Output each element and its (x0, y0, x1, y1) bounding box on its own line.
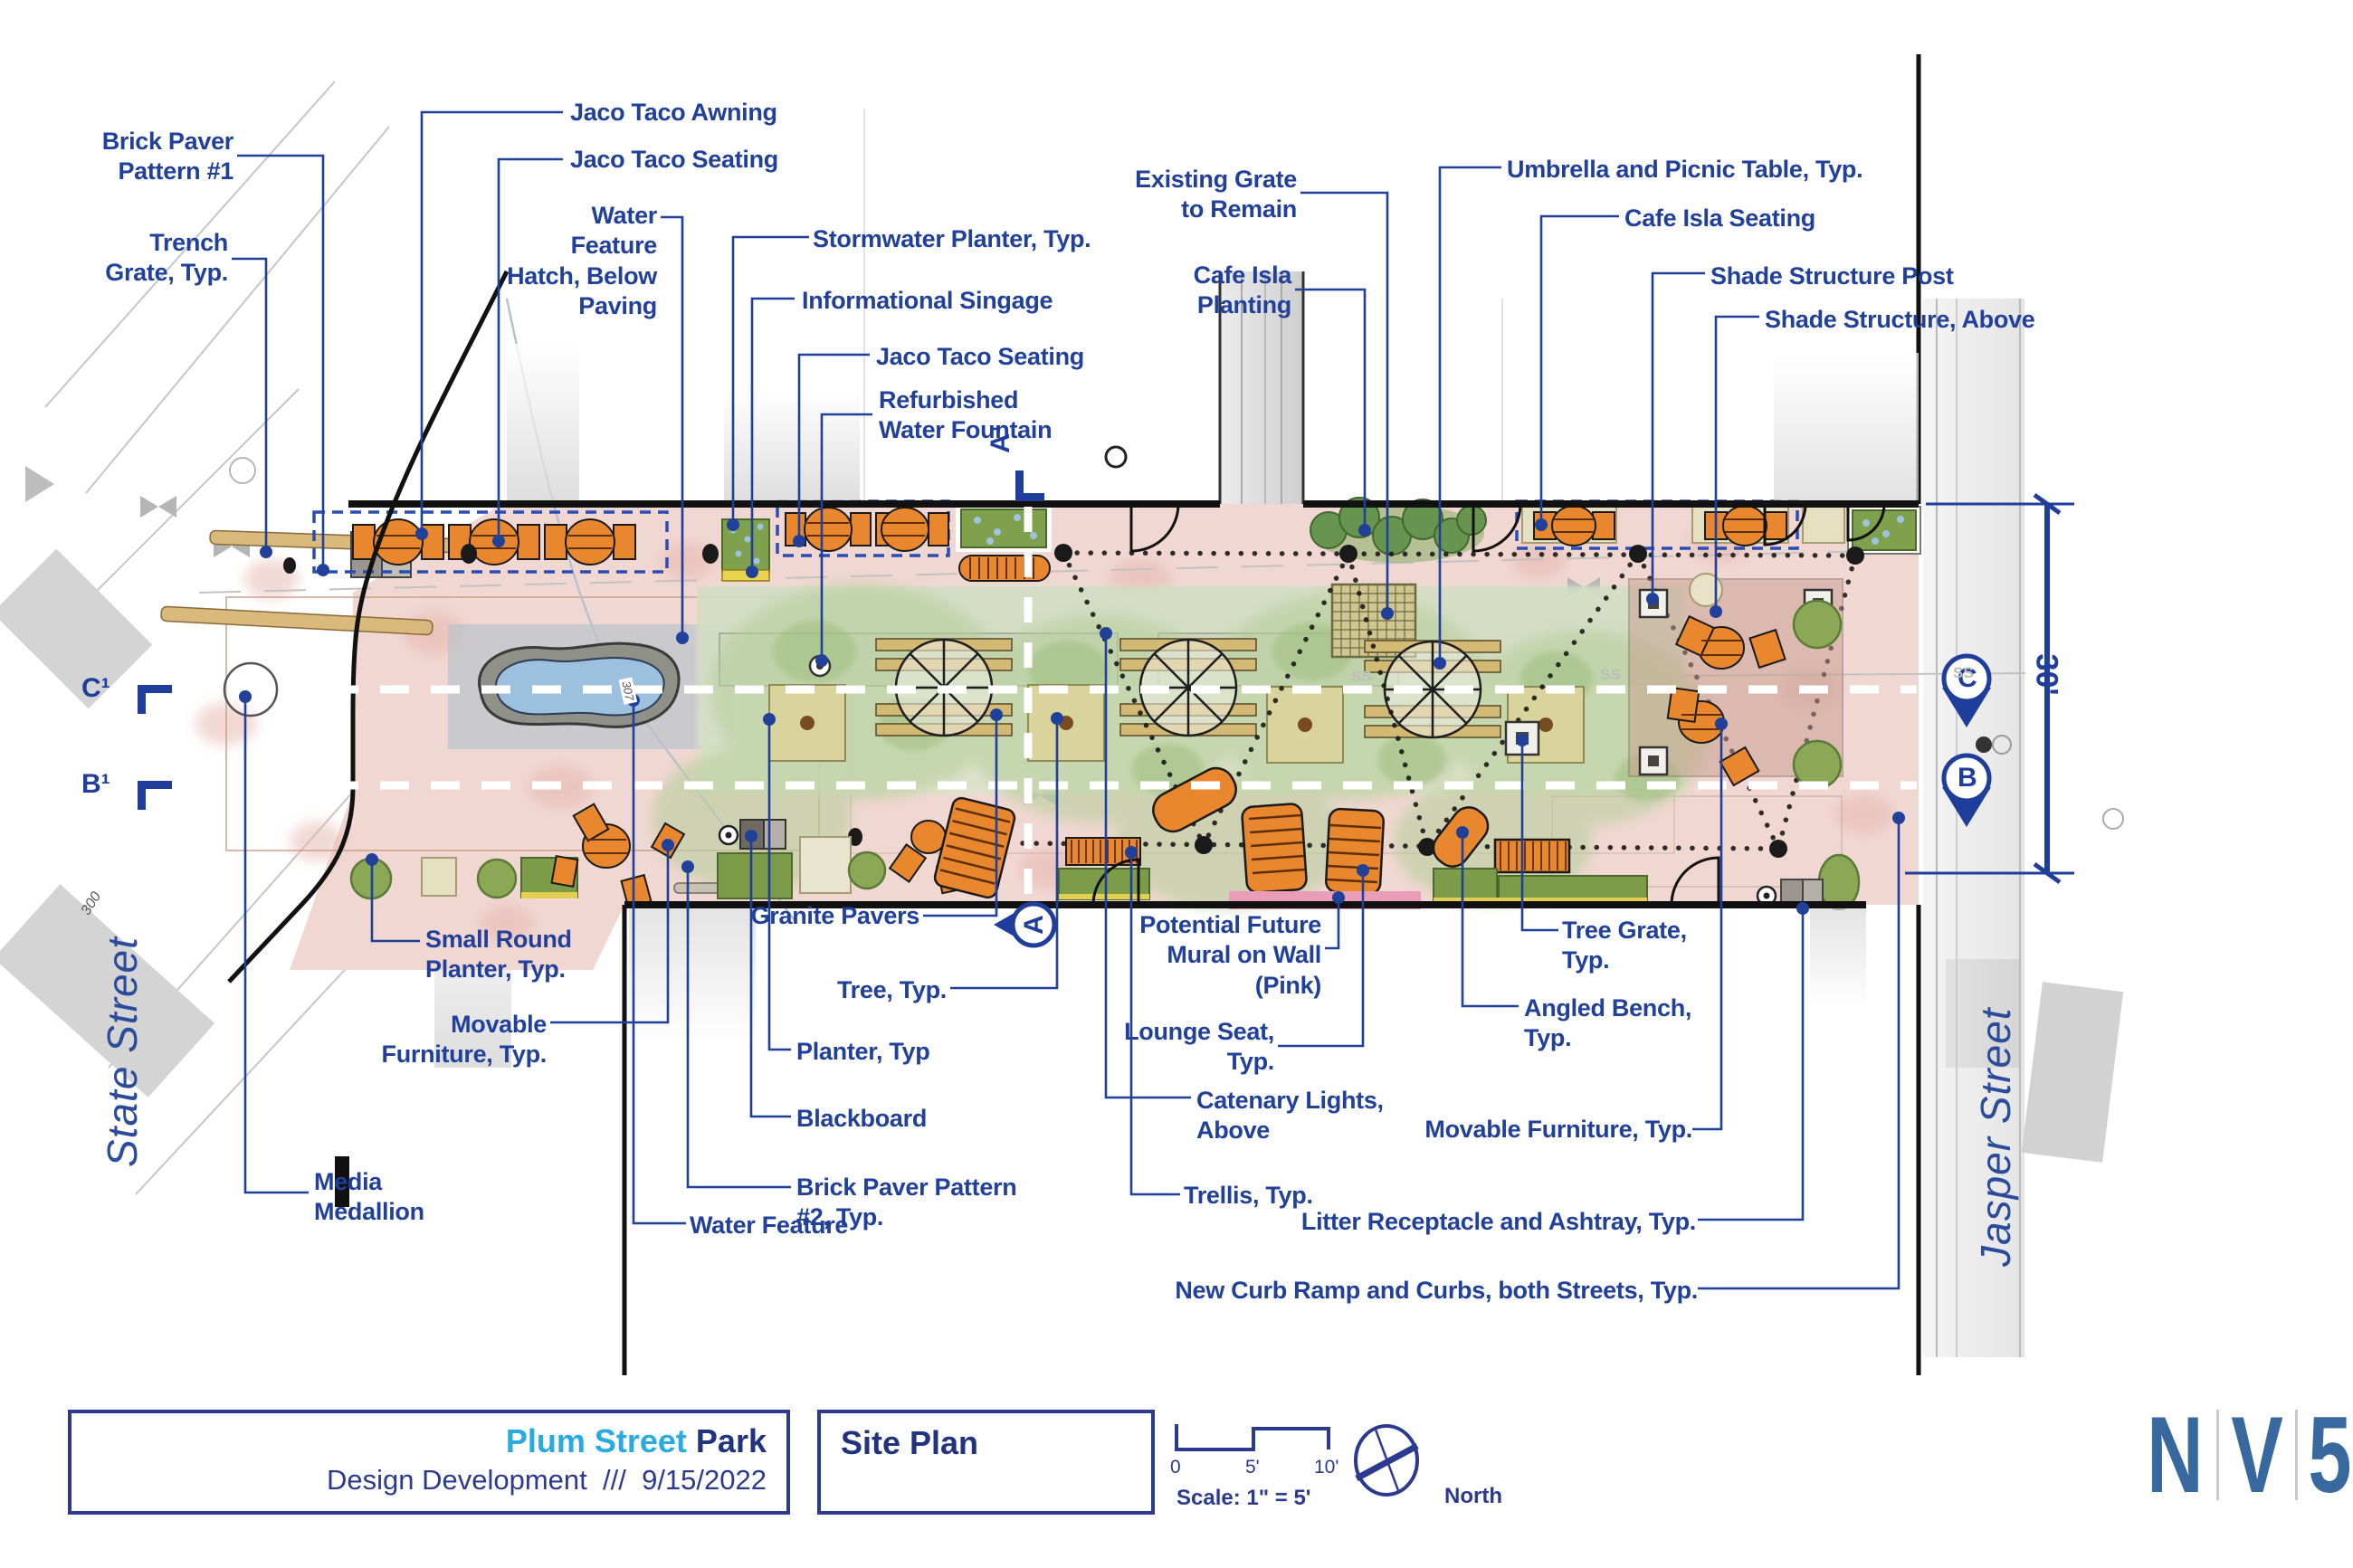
callout-planter-typ: Planter, Typ (796, 1037, 929, 1067)
callout-angled-bench: Angled Bench, Typ. (1524, 993, 1691, 1054)
callout-mural: Potential Future Mural on Wall (Pink) (1139, 910, 1321, 1001)
callout-movable-2: Movable Furniture, Typ. (1424, 1115, 1692, 1145)
section-marker-b1: B¹ (81, 769, 110, 800)
bench-top (959, 556, 1050, 581)
logo-separator (2295, 1410, 2298, 1500)
logo-letter-v: V (2231, 1401, 2283, 1509)
section-marker-c1: C¹ (81, 673, 110, 704)
callout-refurb-fountain: Refurbished Water Fountain (879, 385, 1052, 446)
callout-existing-grate: Existing Grate to Remain (1135, 165, 1297, 225)
utility-label-ss-1: SS (1351, 668, 1372, 686)
callout-brick-paver-1: Brick Paver Pattern #1 (102, 127, 233, 187)
north-arrow (1356, 1426, 1417, 1495)
callout-shade-above: Shade Structure, Above (1765, 305, 2034, 335)
sheet-name-block: Site Plan (817, 1410, 1155, 1515)
callout-jaco-awning: Jaco Taco Awning (570, 98, 777, 128)
callout-blackboard: Blackboard (796, 1104, 927, 1134)
scale-tick-10: 10' (1314, 1457, 1338, 1478)
scale-tick-5: 5' (1245, 1457, 1260, 1478)
callout-lounge-seat: Lounge Seat, Typ. (1124, 1017, 1274, 1078)
callout-jaco-seating-1: Jaco Taco Seating (570, 145, 778, 175)
project-title: Plum Street Park (506, 1422, 767, 1460)
street-label-jasper: Jasper Street (1971, 959, 2020, 1267)
callout-tree-typ: Tree, Typ. (837, 975, 947, 1005)
callout-media-medallion: Media Medallion (314, 1167, 424, 1228)
callout-cafe-planting: Cafe Isla Planting (1194, 261, 1291, 321)
dimension-label-30ft: 30' (2028, 654, 2063, 696)
callout-small-planter: Small Round Planter, Typ. (425, 925, 572, 985)
plan-drawing (0, 0, 2353, 1568)
callout-info-singage: Informational Singage (802, 286, 1053, 316)
logo-separator (2216, 1410, 2219, 1500)
project-subtitle: Design Development /// 9/15/2022 (327, 1464, 767, 1497)
scale-text: Scale: 1" = 5' (1176, 1486, 1311, 1511)
section-marker-b: B (1958, 763, 1977, 794)
nv5-logo: N V 5 (2141, 1401, 2353, 1509)
callout-jaco-seating-2: Jaco Taco Seating (876, 342, 1084, 372)
callout-litter: Litter Receptacle and Ashtray, Typ. (1301, 1207, 1696, 1237)
callout-umbrella-table: Umbrella and Picnic Table, Typ. (1507, 155, 1862, 185)
north-label: North (1444, 1484, 1502, 1509)
callout-granite-pavers: Granite Pavers (751, 901, 919, 931)
jasper-street-linework (1919, 54, 2123, 1375)
callout-trellis: Trellis, Typ. (1184, 1181, 1313, 1211)
utility-label-ss-3: SS (1953, 664, 1974, 682)
callout-stormwater: Stormwater Planter, Typ. (813, 224, 1091, 254)
utility-label-ss-2: SS (1600, 666, 1621, 684)
callout-movable-1: Movable Furniture, Typ. (382, 1010, 548, 1070)
logo-letter-n: N (2147, 1401, 2203, 1509)
callout-tree-grate: Tree Grate, Typ. (1562, 916, 1687, 976)
callout-trench-grate: Trench Grate, Typ. (105, 228, 228, 289)
scale-tick-0: 0 (1170, 1457, 1181, 1478)
callout-water-hatch: Water Feature Hatch, Below Paving (507, 201, 657, 322)
callout-shade-post: Shade Structure Post (1710, 261, 1954, 291)
title-block: Plum Street Park Design Development /// … (68, 1410, 790, 1515)
trellis-left (1059, 838, 1149, 899)
street-label-state: State Street (98, 860, 147, 1167)
callout-catenary: Catenary Lights, Above (1196, 1086, 1384, 1146)
callout-water-feature: Water Feature (690, 1211, 848, 1240)
scale-bar (1176, 1424, 1329, 1449)
logo-letter-5: 5 (2308, 1401, 2351, 1509)
callout-cafe-seating: Cafe Isla Seating (1624, 204, 1815, 233)
section-marker-a: A (1019, 915, 1050, 935)
callout-curb-ramp: New Curb Ramp and Curbs, both Streets, T… (1175, 1276, 1698, 1306)
section-marker-a1: A¹ (986, 424, 1016, 453)
sheet-name: Site Plan (841, 1424, 978, 1462)
site-plan-sheet: Brick Paver Pattern #1 Trench Grate, Typ… (0, 0, 2353, 1568)
